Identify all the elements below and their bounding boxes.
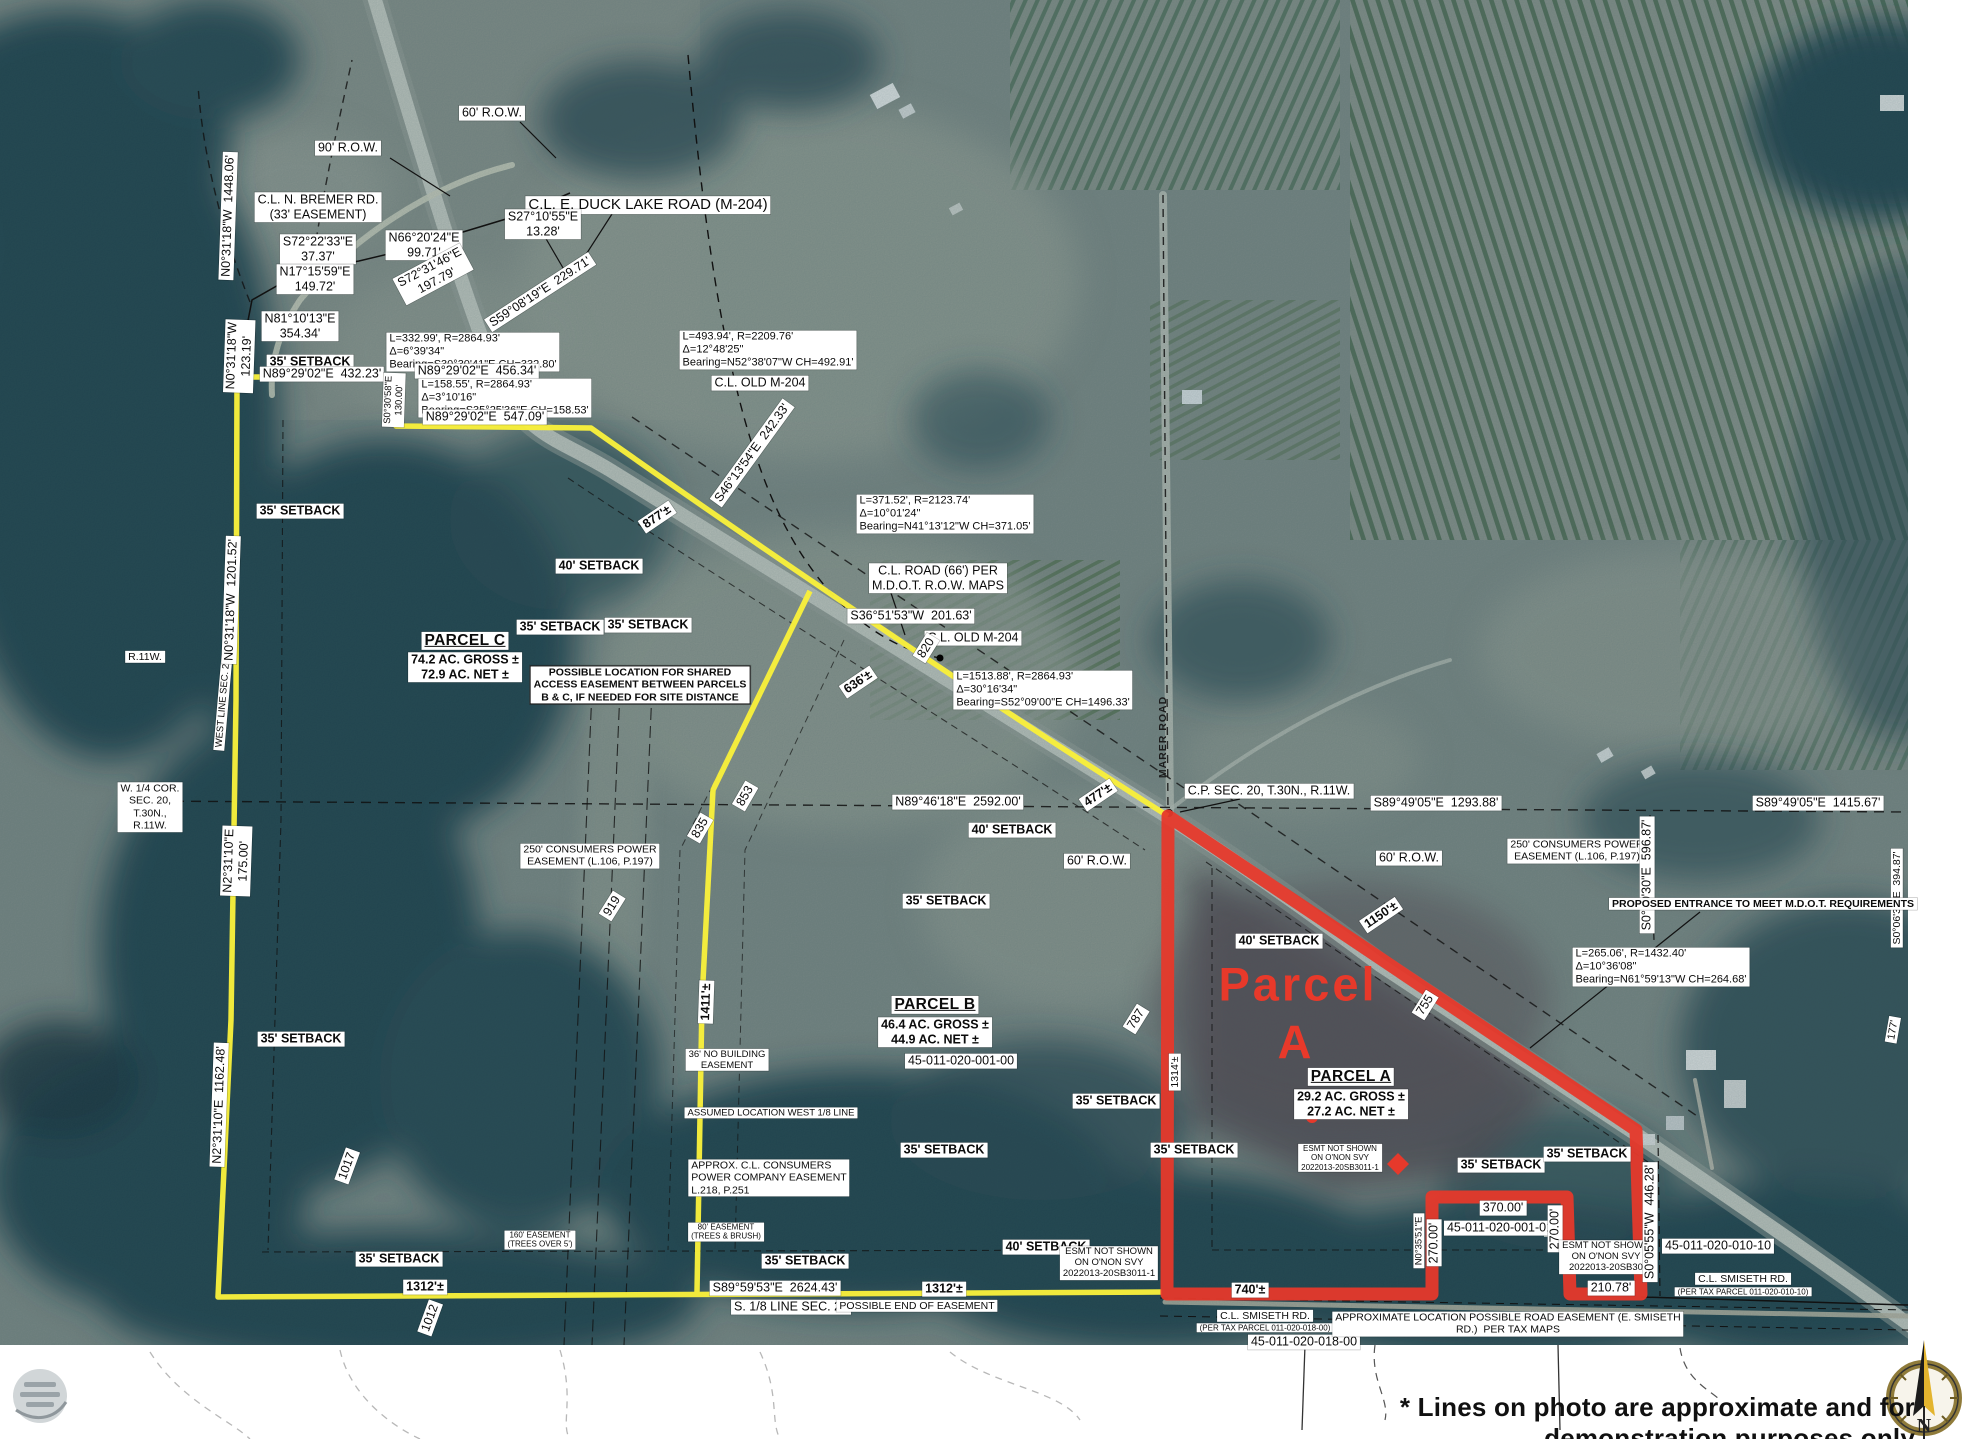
- map-label: 1314'±: [1169, 1053, 1181, 1090]
- map-label: C.L. OLD M-204: [711, 376, 808, 391]
- map-label: 740'±: [1232, 1283, 1269, 1298]
- map-label: 35' SETBACK: [901, 1143, 988, 1158]
- map-label: 1411'±: [698, 980, 714, 1023]
- map-label: 820: [913, 633, 940, 664]
- map-label: 370.00': [1480, 1201, 1527, 1216]
- map-label: 35' SETBACK: [258, 1032, 345, 1047]
- map-label: (PER TAX PARCEL 011-020-010-10): [1675, 1287, 1812, 1296]
- map-label: N2°31'10"E 1162.48': [209, 1043, 228, 1167]
- map-label: 35' SETBACK: [1073, 1094, 1160, 1109]
- map-label: 877'±: [638, 501, 677, 534]
- map-label: POSSIBLE END OF EASEMENT: [836, 1300, 997, 1312]
- map-label: 853: [732, 781, 758, 812]
- map-label: WEST LINE SEC. 20: [213, 655, 232, 751]
- map-label: 1312'±: [922, 1282, 966, 1297]
- map-label: R.11W.: [125, 651, 165, 663]
- map-label: C.P. SEC. 20, T.30N., R.11W.: [1185, 784, 1354, 799]
- map-label: 35' SETBACK: [517, 620, 604, 635]
- map-label: 250' CONSUMERS POWER EASEMENT (L.106, P.…: [1507, 839, 1646, 864]
- label-layer: 60' R.O.W.90' R.O.W.C.L. N. BREMER RD. (…: [0, 0, 1963, 1439]
- map-label: (PER TAX PARCEL 011-020-018-00): [1197, 1323, 1334, 1332]
- map-label: 46.4 AC. GROSS ± 44.9 AC. NET ±: [878, 1017, 992, 1047]
- disclaimer-note: * Lines on photo are approximate and for…: [1215, 1392, 1915, 1439]
- map-label: 40' SETBACK: [969, 823, 1056, 838]
- map-label: S0°10'30"E 596.87': [1640, 817, 1655, 934]
- map-label: C.L. SMISETH RD.: [1217, 1310, 1313, 1322]
- map-label: 755: [1412, 990, 1439, 1021]
- map-label: S89°49'05"E 1415.67': [1753, 796, 1884, 811]
- map-label: 35' SETBACK: [1458, 1158, 1545, 1173]
- map-label: C.L. ROAD (66') PER M.D.O.T. R.O.W. MAPS: [869, 563, 1007, 593]
- map-label: 636'±: [839, 666, 878, 699]
- map-label: 35' SETBACK: [605, 618, 692, 633]
- map-label: N89°29'02"E 432.23': [260, 367, 384, 382]
- map-label: 1150'±: [1359, 897, 1403, 933]
- map-label: 45-011-020-001-00: [905, 1054, 1017, 1069]
- map-label: PARCEL C: [422, 632, 509, 650]
- map-label: APPROXIMATE LOCATION POSSIBLE ROAD EASEM…: [1332, 1312, 1683, 1337]
- survey-map-page: N 60' R.O.W.90' R.O.W.C.L. N. BREMER RD.…: [0, 0, 1963, 1439]
- map-label: ESMT NOT SHOWN ON O'NON SVY 2022013-20SB…: [1060, 1246, 1158, 1280]
- map-label: 250' CONSUMERS POWER EASEMENT (L.106, P.…: [520, 844, 659, 869]
- map-label: S27°10'55"E 13.28': [505, 209, 581, 239]
- map-label: 80' EASEMENT (TREES & BRUSH): [688, 1223, 764, 1242]
- map-label: 35' SETBACK: [1151, 1143, 1238, 1158]
- map-label: S0°30'58"E 130.00': [382, 373, 406, 428]
- map-label: N0°31'18"W 1448.06': [218, 152, 237, 280]
- map-label: 74.2 AC. GROSS ± 72.9 AC. NET ±: [408, 652, 522, 682]
- map-label: S89°49'05"E 1293.88': [1371, 796, 1502, 811]
- map-label: S0°05'55"W 446.28': [1643, 1162, 1658, 1282]
- map-label: ESMT NOT SHOWN ON O'NON SVY 2022013-20SB…: [1559, 1240, 1653, 1274]
- map-label: L=265.06', R=1432.40' Δ=10°36'08" Bearin…: [1573, 948, 1750, 987]
- map-label: 45-011-020-018-00: [1248, 1335, 1360, 1350]
- map-label: N17°15'59"E 149.72': [277, 264, 354, 294]
- map-label: 160' EASEMENT (TREES OVER 5'): [504, 1231, 575, 1250]
- map-label: ASSUMED LOCATION WEST 1/8 LINE: [685, 1107, 858, 1118]
- map-label: 35' SETBACK: [762, 1254, 849, 1269]
- map-label: 36' NO BUILDING EASEMENT: [686, 1049, 769, 1071]
- map-label: 35' SETBACK: [1544, 1147, 1631, 1162]
- map-label: S72°22'33"E 37.37': [280, 234, 356, 264]
- map-label: 1017: [334, 1148, 359, 1185]
- map-label: 40' SETBACK: [556, 559, 643, 574]
- map-label: 1012: [417, 1300, 442, 1337]
- map-label: N89°29'02"E 456.34': [415, 364, 539, 379]
- map-label: S46°13'54"E 242.33': [710, 399, 795, 508]
- map-label: 90' R.O.W.: [315, 141, 381, 156]
- map-label: C.L. OLD M-204: [924, 631, 1021, 646]
- map-label: N89°29'02"E 547.09': [423, 410, 547, 425]
- map-label: 919: [599, 891, 626, 922]
- map-label: 477'±: [1079, 779, 1118, 812]
- map-label: 40' SETBACK: [1236, 934, 1323, 949]
- map-label: PROPOSED ENTRANCE TO MEET M.D.O.T. REQUI…: [1609, 898, 1917, 910]
- map-label: 60' R.O.W.: [459, 106, 525, 121]
- map-label: C.L. SMISETH RD.: [1695, 1273, 1791, 1285]
- map-label: N0°35'51"E: [1413, 1214, 1424, 1269]
- map-label: APPROX. C.L. CONSUMERS POWER COMPANY EAS…: [688, 1159, 849, 1196]
- map-label: N0°31'18"W 1201.52': [221, 536, 240, 664]
- map-label: 60' R.O.W.: [1064, 854, 1130, 869]
- map-label: MARER ROAD: [1157, 693, 1169, 781]
- map-label: 35' SETBACK: [356, 1252, 443, 1267]
- map-label: 45-011-020-001-01: [1444, 1221, 1556, 1236]
- map-label: ESMT NOT SHOWN ON O'NON SVY 2022013-20SB…: [1298, 1144, 1382, 1172]
- map-label: 210.78': [1588, 1281, 1635, 1296]
- map-label: 45-011-020-010-10: [1662, 1239, 1774, 1254]
- map-label: S36°51'53"W 201.63': [847, 609, 974, 624]
- map-label: W. 1/4 COR. SEC. 20, T.30N., R.11W.: [118, 782, 183, 832]
- map-label: 177': [1885, 1016, 1902, 1043]
- map-label: 1312'±: [403, 1280, 447, 1295]
- map-label: L=371.52', R=2123.74' Δ=10°01'24" Bearin…: [857, 495, 1034, 534]
- map-label: 35' SETBACK: [903, 894, 990, 909]
- map-label: Parcel: [1215, 956, 1380, 1011]
- map-label: 835: [687, 813, 713, 844]
- map-label: POSSIBLE LOCATION FOR SHARED ACCESS EASE…: [530, 665, 751, 704]
- map-label: N81°10'13"E 354.34': [262, 311, 339, 341]
- map-label: PARCEL A: [1308, 1068, 1394, 1086]
- map-label: S. 1/8 LINE SEC. 20: [731, 1300, 851, 1315]
- map-label: 35' SETBACK: [257, 504, 344, 519]
- map-label: 270.00': [1427, 1220, 1442, 1267]
- map-label: N2°31'10"E 175.00': [220, 826, 252, 897]
- map-label: A: [1275, 1014, 1318, 1069]
- map-label: S59°08'19"E 229.71': [484, 252, 596, 332]
- map-label: PARCEL B: [892, 996, 979, 1014]
- map-label: 29.2 AC. GROSS ± 27.2 AC. NET ±: [1294, 1089, 1408, 1119]
- map-label: 60' R.O.W.: [1376, 851, 1442, 866]
- map-label: L=1513.88', R=2864.93' Δ=30°16'34" Beari…: [953, 671, 1132, 710]
- map-label: N0°31'18"W 123.19': [223, 319, 255, 393]
- map-label: S89°59'53"E 2624.43': [710, 1281, 841, 1296]
- map-label: L=493.94', R=2209.76' Δ=12°48'25" Bearin…: [680, 331, 857, 370]
- map-label: 787: [1123, 1004, 1150, 1035]
- map-label: N89°46'18"E 2592.00': [892, 795, 1023, 810]
- map-label: C.L. N. BREMER RD. (33' EASEMENT): [255, 192, 382, 222]
